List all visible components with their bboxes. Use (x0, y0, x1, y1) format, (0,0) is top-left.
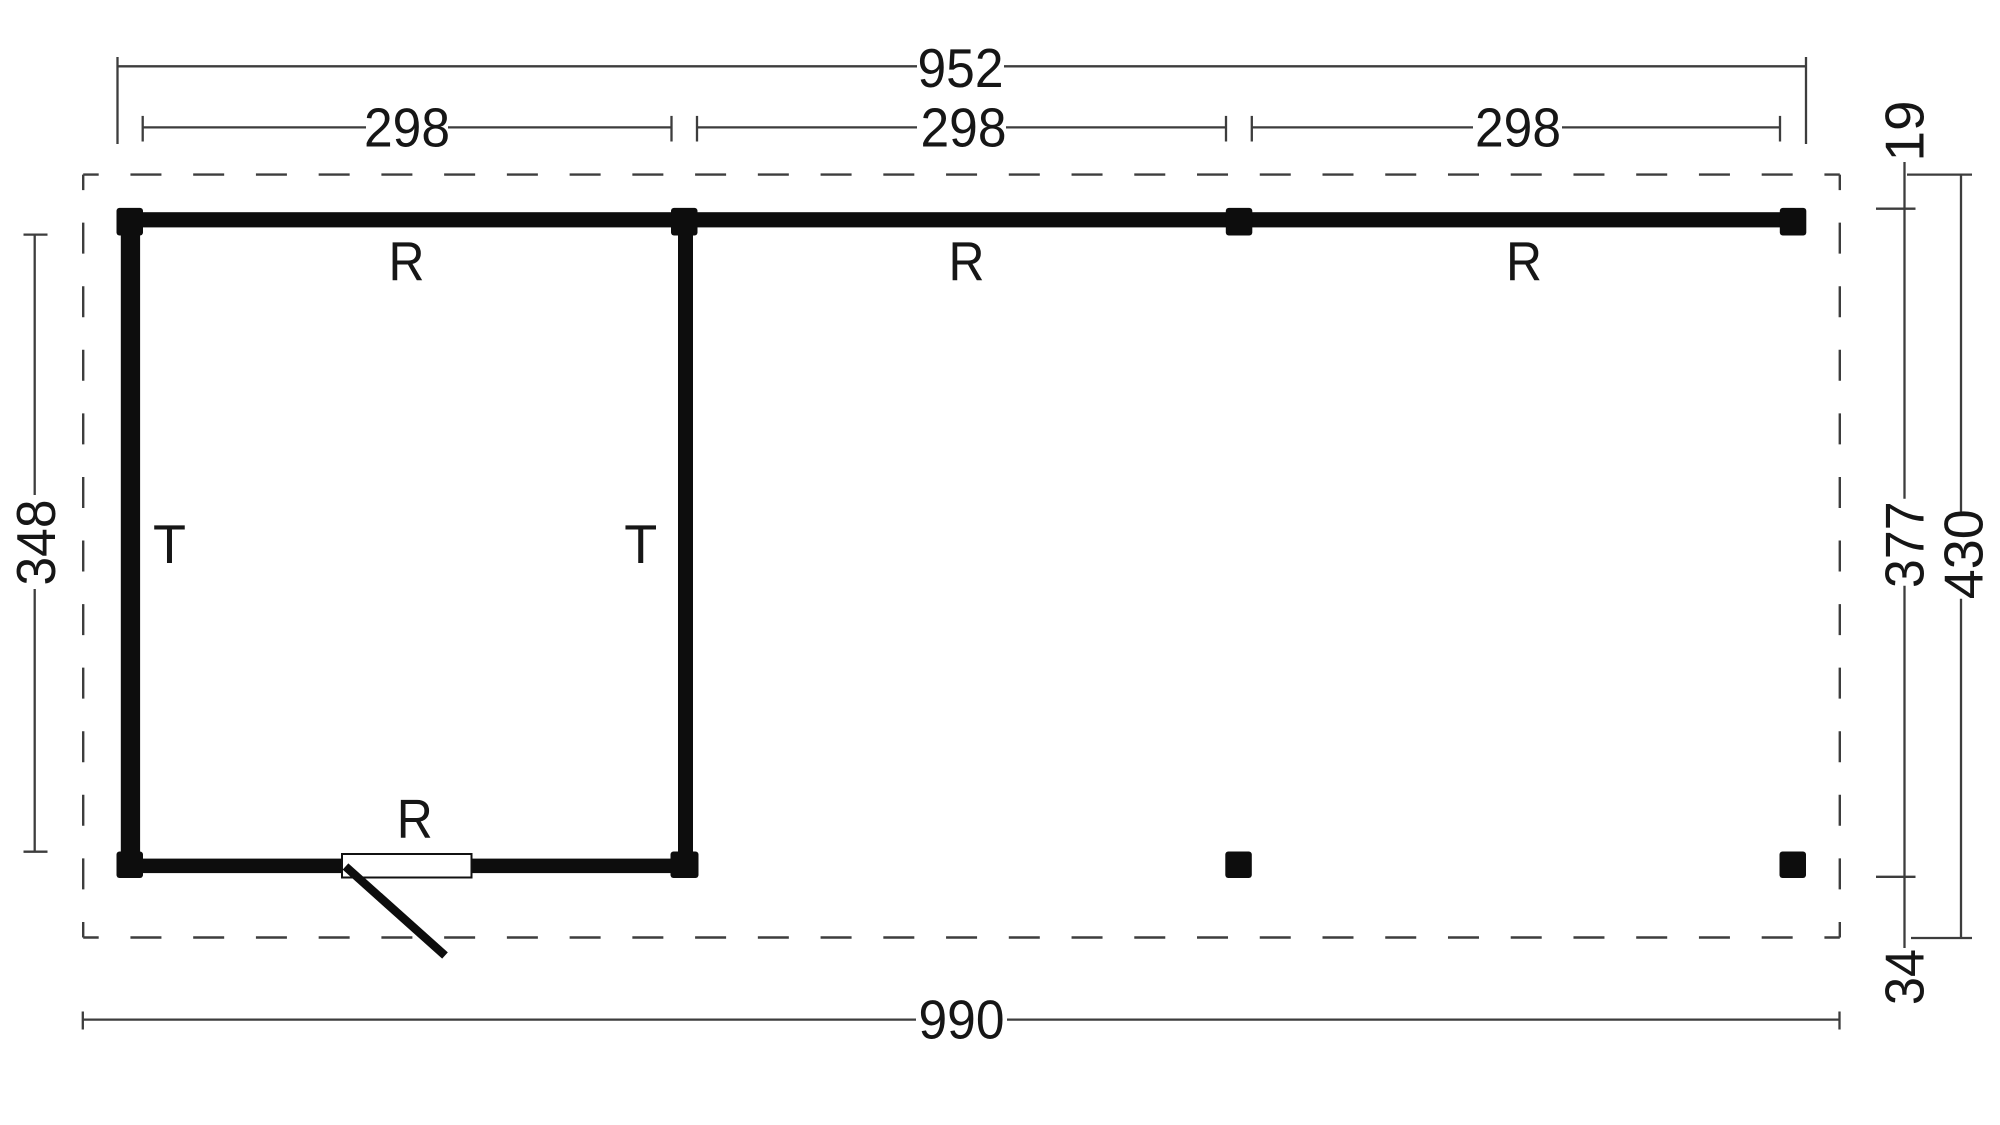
svg-text:298: 298 (921, 96, 1007, 158)
svg-text:430: 430 (1933, 509, 1995, 599)
svg-text:R: R (1506, 230, 1542, 292)
svg-text:348: 348 (5, 500, 67, 586)
svg-text:R: R (949, 230, 985, 292)
svg-text:R: R (397, 788, 433, 850)
svg-text:298: 298 (1475, 96, 1561, 158)
svg-text:T: T (153, 513, 186, 575)
svg-text:298: 298 (364, 96, 450, 158)
svg-text:R: R (389, 230, 425, 292)
svg-text:952: 952 (918, 37, 1004, 99)
svg-text:377: 377 (1874, 501, 1936, 588)
svg-text:34: 34 (1874, 949, 1936, 1005)
svg-text:19: 19 (1874, 101, 1936, 162)
svg-text:T: T (624, 513, 657, 575)
svg-text:990: 990 (919, 989, 1005, 1051)
